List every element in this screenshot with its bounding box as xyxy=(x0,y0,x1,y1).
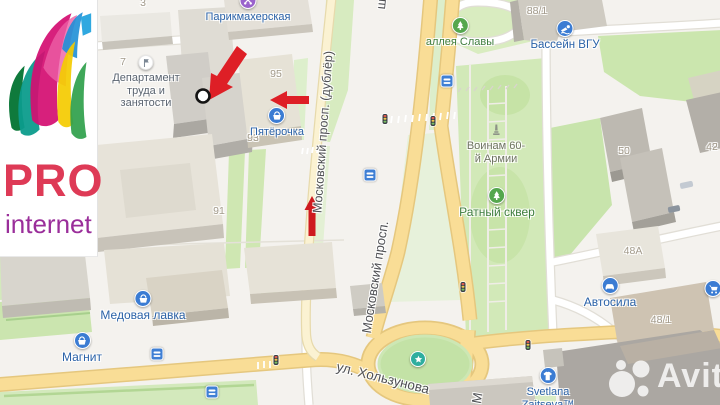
poi-ratny-skver[interactable]: Ратный сквер xyxy=(459,187,535,219)
poi-svetlana-zaitseva[interactable]: Svetlana Zaitseva™ xyxy=(522,367,575,405)
poi-voinam-monument[interactable]: Воинам 60- й Армии xyxy=(467,122,525,165)
building-number: 95 xyxy=(270,68,282,80)
poi-pool-vgu[interactable]: Бассейн ВГУ xyxy=(530,20,599,52)
roundabout-star[interactable] xyxy=(410,351,426,367)
poi-department[interactable]: Департамент труда и занятости xyxy=(112,55,179,110)
poi-medovaya-lavka[interactable]: Медовая лавка xyxy=(100,290,185,322)
bus-stop-icon[interactable] xyxy=(151,348,164,361)
traffic-light-icon xyxy=(461,282,466,292)
building-number: 3 xyxy=(140,0,146,9)
tree-icon xyxy=(488,187,505,204)
bus-stop-icon[interactable] xyxy=(206,386,219,399)
traffic-light-icon xyxy=(431,116,436,126)
monument-icon xyxy=(488,122,504,138)
basket-icon xyxy=(134,290,151,307)
traffic-light-icon xyxy=(526,340,531,350)
map-canvas[interactable] xyxy=(0,0,720,405)
car-icon xyxy=(602,277,619,294)
building-number: 48А xyxy=(624,245,643,257)
flag-icon xyxy=(139,55,154,70)
poi-pyaterochka[interactable]: Пятёрочка xyxy=(250,107,304,139)
pro-internet-logo: PRO internet xyxy=(0,0,98,257)
poi-hypermarket[interactable] xyxy=(705,280,720,297)
map-screenshot: Московский просп. (дублёр) Московский пр… xyxy=(0,0,720,405)
building-number: 42 xyxy=(706,141,718,153)
building-number: 88/1 xyxy=(527,5,547,17)
poi-avtosila[interactable]: Автосила xyxy=(584,277,637,309)
scissors-icon xyxy=(240,0,257,9)
street-label-partial-top: ш xyxy=(373,0,389,10)
bus-stop-icon[interactable] xyxy=(364,169,377,182)
logo-subtitle: internet xyxy=(5,210,92,239)
poi-magnit[interactable]: Магнит xyxy=(62,332,102,364)
building-number: 48/1 xyxy=(651,314,671,326)
cart-icon xyxy=(705,280,720,297)
building-number: 50 xyxy=(618,145,630,157)
building-number: 91 xyxy=(213,205,225,217)
tshirt-icon xyxy=(539,367,556,384)
basket-icon xyxy=(73,332,90,349)
swimmer-icon xyxy=(556,20,573,37)
poi-alley-slavy[interactable]: аллея Славы xyxy=(426,17,494,49)
poi-hairdresser[interactable]: Парикмахерская xyxy=(205,0,290,24)
traffic-light-icon xyxy=(274,355,279,365)
avito-watermark: Avito xyxy=(604,352,720,400)
street-label-partial-south: М xyxy=(469,391,486,404)
location-marker xyxy=(197,90,210,103)
avito-watermark-text: Avito xyxy=(657,359,720,393)
tree-icon xyxy=(451,17,468,34)
bus-stop-icon[interactable] xyxy=(441,75,454,88)
logo-sail-icon xyxy=(1,2,97,166)
star-icon xyxy=(410,351,426,367)
avito-dots-icon xyxy=(604,352,654,400)
traffic-light-icon xyxy=(383,114,388,124)
logo-title: PRO xyxy=(3,158,104,203)
basket-icon xyxy=(268,107,285,124)
